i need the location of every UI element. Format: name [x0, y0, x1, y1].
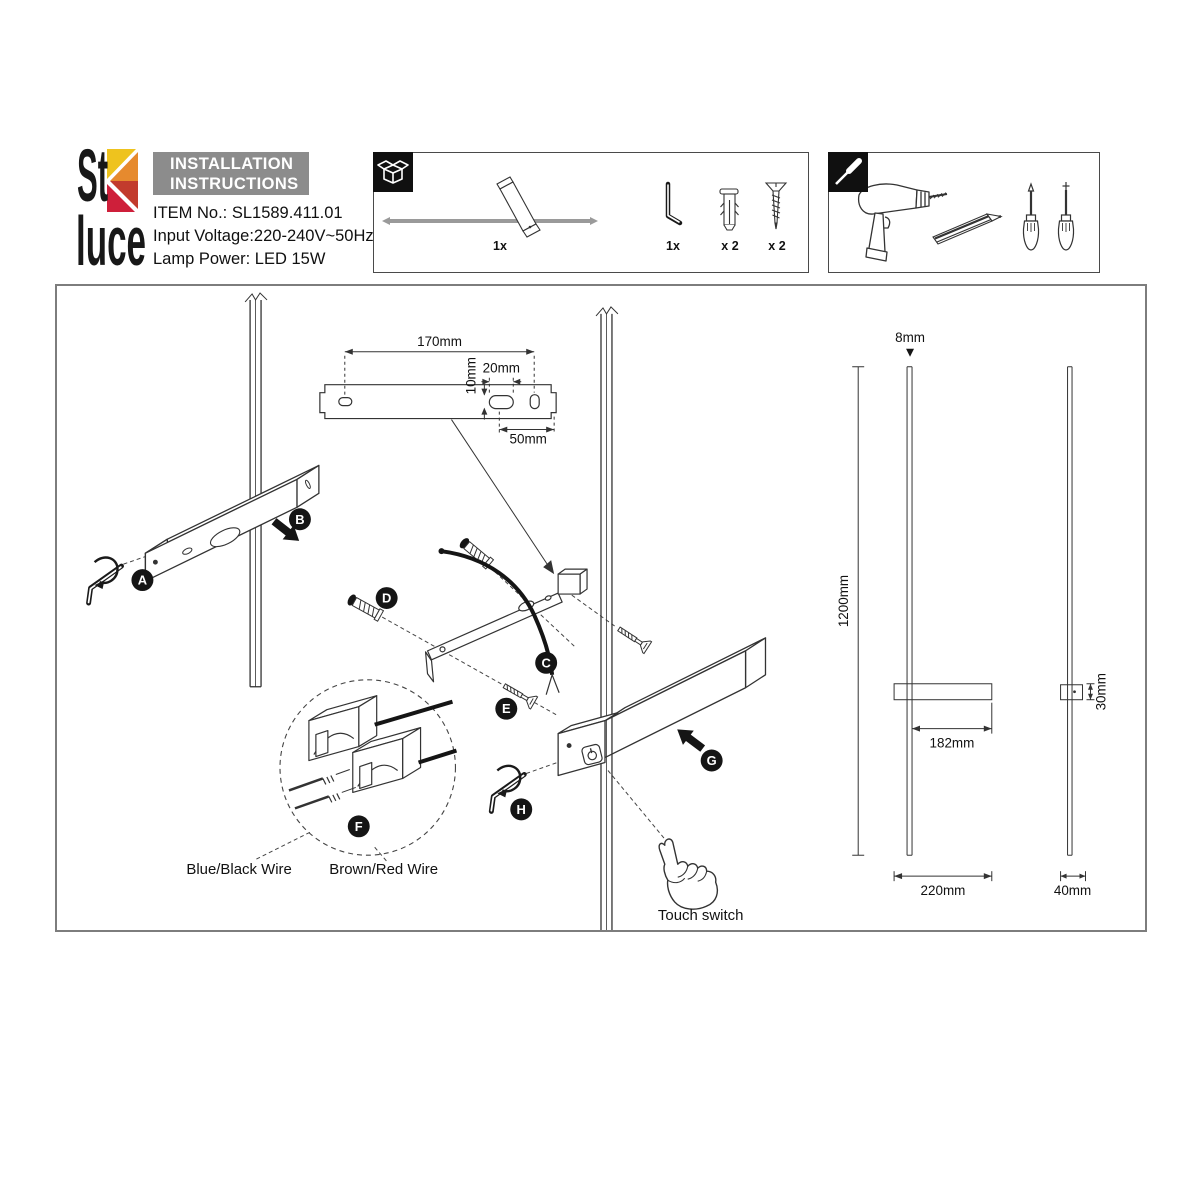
dim-rod-diameter: 8mm	[895, 330, 925, 345]
doc-title: INSTALLATION INSTRUCTIONS	[153, 152, 309, 195]
step-marker-d: D	[376, 587, 398, 609]
doc-title-line1: INSTALLATION	[170, 154, 309, 174]
pointing-hand-icon	[659, 839, 717, 909]
svg-text:H: H	[517, 802, 526, 817]
hex-key-icon	[668, 184, 680, 223]
stripped-wires	[289, 769, 356, 808]
wall-rod-left	[245, 293, 267, 687]
dim-side-width: 40mm	[1054, 883, 1091, 898]
step-marker-c: C	[535, 652, 557, 674]
dim-fixture-height: 1200mm	[836, 575, 851, 627]
wall-anchor-icon	[720, 189, 739, 230]
instruction-sheet: St luce INSTALLATION INSTRUCTIONS ITEM N…	[0, 0, 1200, 1200]
flat-screwdriver-icon	[1023, 184, 1038, 250]
step-marker-g: G	[701, 750, 723, 772]
side-view-dimensions	[1061, 367, 1095, 881]
arrow-step-g	[672, 722, 708, 756]
dim-slot-offset: 50mm	[510, 432, 547, 447]
main-diagram: 170mm 10mm 20mm 50mm	[57, 286, 1145, 930]
screw-icon	[766, 183, 786, 229]
dim-bracket-length: 170mm	[417, 334, 462, 349]
product-info: ITEM No.: SL1589.411.01 Input Voltage:22…	[153, 202, 374, 271]
bracket-plan-drawing	[320, 385, 556, 419]
mount-screw-2	[615, 623, 651, 653]
brand-logo: St luce	[75, 144, 155, 270]
pencil-icon	[933, 214, 1001, 244]
step-marker-h: H	[510, 798, 532, 820]
dim-base-width: 220mm	[921, 883, 966, 898]
item-number: ITEM No.: SL1589.411.01	[153, 202, 374, 225]
hex-key-step-a	[89, 558, 122, 604]
phillips-screwdriver-icon	[1058, 182, 1073, 250]
tools-panel	[828, 152, 1100, 273]
svg-text:D: D	[382, 591, 391, 606]
package-contents-panel: 1x 1x x 2 x 2	[373, 152, 809, 273]
dim-body-depth: 30mm	[1093, 673, 1108, 710]
dim-arm-length: 182mm	[930, 736, 975, 751]
main-diagram-frame: 170mm 10mm 20mm 50mm	[55, 284, 1147, 932]
dim-slot-width: 20mm	[483, 361, 520, 376]
wall-rod-right	[596, 307, 618, 930]
screw-qty: x 2	[768, 239, 785, 253]
anchor-qty: x 2	[721, 239, 738, 253]
package-icon	[373, 152, 413, 192]
svg-text:G: G	[707, 753, 717, 768]
step-marker-e: E	[495, 698, 517, 720]
doc-title-line2: INSTRUCTIONS	[170, 174, 309, 194]
lamp-qty: 1x	[493, 239, 507, 253]
lamp-power: Lamp Power: LED 15W	[153, 248, 374, 271]
bracket-plan-dimensions	[345, 349, 554, 574]
dim-slot-height: 10mm	[463, 357, 478, 394]
brown-red-wire-label: Brown/Red Wire	[329, 861, 438, 878]
svg-text:A: A	[138, 573, 147, 588]
touch-switch-label: Touch switch	[658, 907, 744, 924]
svg-text:E: E	[502, 701, 511, 716]
svg-text:B: B	[295, 512, 304, 527]
step-marker-f: F	[348, 815, 370, 837]
step-marker-a: A	[131, 569, 153, 591]
front-view-dimensions	[852, 349, 992, 881]
bracket-end-box	[558, 569, 587, 594]
blue-black-wire-label: Blue/Black Wire	[186, 861, 291, 878]
hex-key-qty: 1x	[666, 239, 680, 253]
step-marker-b: B	[289, 508, 311, 530]
drill-icon	[859, 184, 947, 261]
tools-icon	[828, 152, 868, 192]
input-voltage: Input Voltage:220-240V~50Hz	[153, 225, 374, 248]
logo-text-bottom: luce	[76, 202, 146, 270]
lamp-rod-illustration	[382, 177, 598, 237]
svg-text:F: F	[355, 819, 363, 834]
svg-text:C: C	[541, 655, 550, 670]
